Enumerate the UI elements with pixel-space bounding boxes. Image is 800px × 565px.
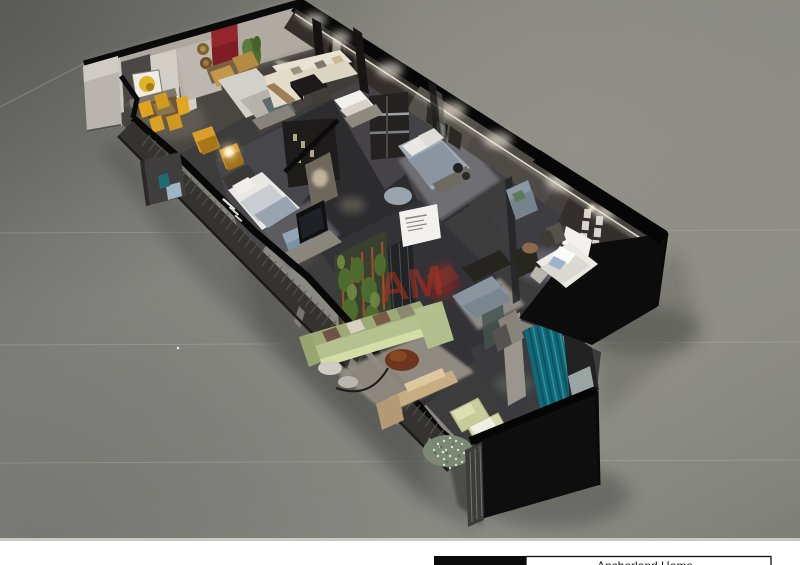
svg-text:Anchorland Home: Anchorland Home (597, 559, 693, 565)
